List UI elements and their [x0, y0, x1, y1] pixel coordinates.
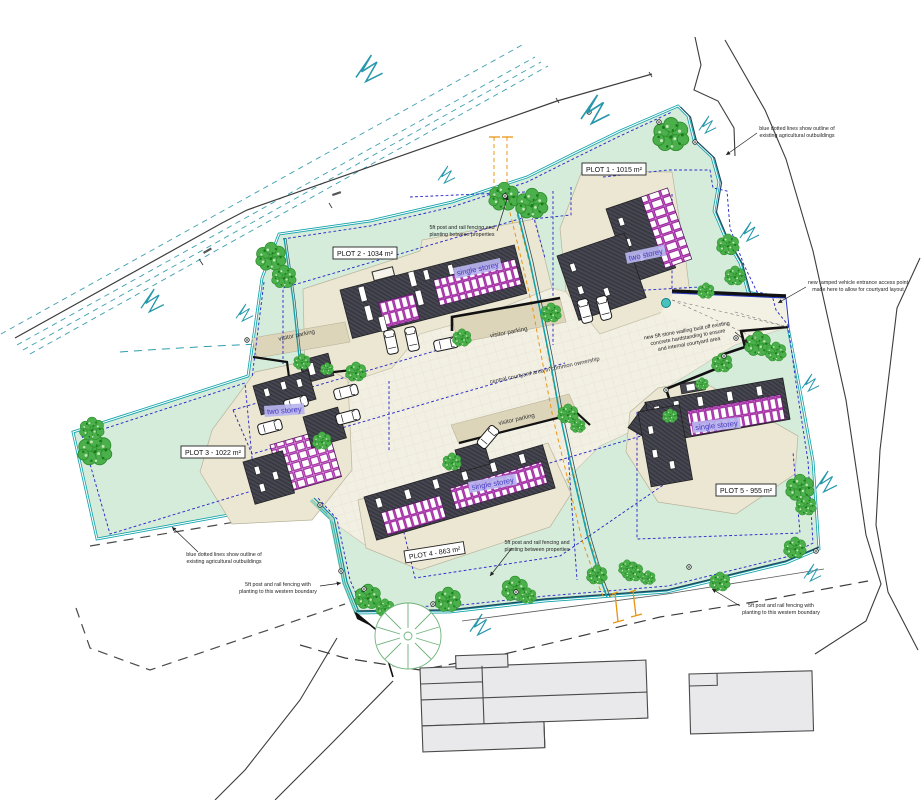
svg-text:5ft post and rail fencing and: 5ft post and rail fencing and [429, 225, 494, 231]
svg-text:5ft post and rail fencing and: 5ft post and rail fencing and [504, 540, 569, 546]
svg-text:PLOT 2 - 1034 m²: PLOT 2 - 1034 m² [337, 251, 394, 258]
svg-text:existing agricultural outbuild: existing agricultural outbuildings [759, 133, 834, 139]
svg-text:blue dotted lines show outline: blue dotted lines show outline of [759, 126, 835, 132]
svg-text:new ramped vehicle entrance ac: new ramped vehicle entrance access point [808, 280, 909, 286]
svg-text:planting to this western bound: planting to this western boundary [239, 589, 317, 595]
svg-text:blue dotted lines show outline: blue dotted lines show outline of [186, 552, 262, 558]
svg-text:planting between properties: planting between properties [429, 232, 494, 238]
svg-text:5ft post and rail fencing with: 5ft post and rail fencing with [245, 582, 311, 588]
svg-text:planting between properties: planting between properties [504, 547, 569, 553]
svg-text:PLOT 1 - 1015 m²: PLOT 1 - 1015 m² [586, 167, 643, 174]
svg-text:PLOT 3 - 1022 m²: PLOT 3 - 1022 m² [185, 450, 242, 457]
svg-text:5ft post and rail fencing with: 5ft post and rail fencing with [748, 603, 814, 609]
svg-text:planting to this western bound: planting to this western boundary [742, 610, 820, 616]
svg-text:existing agricultural outbuild: existing agricultural outbuildings [186, 559, 261, 565]
svg-text:made here to allow for courtya: made here to allow for courtyard layout [812, 287, 904, 293]
svg-text:PLOT 5 - 955 m²: PLOT 5 - 955 m² [720, 488, 773, 495]
